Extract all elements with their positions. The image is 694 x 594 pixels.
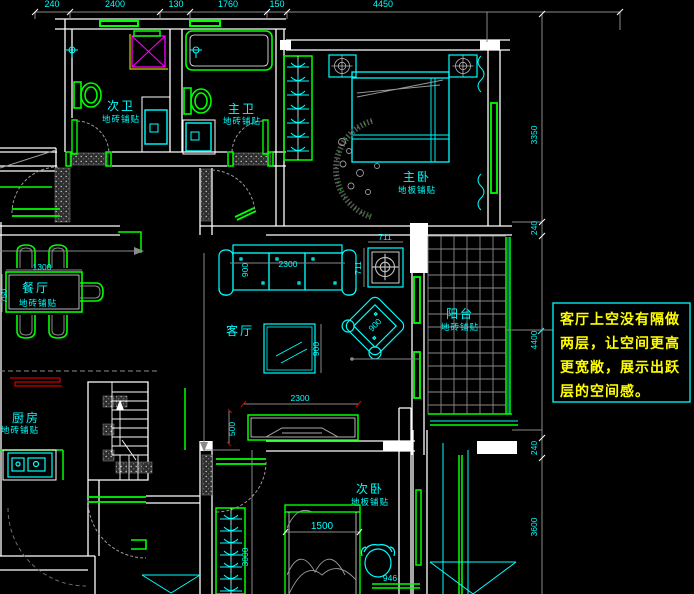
entry-door bbox=[8, 497, 200, 593]
room-label-bed2: 次卧 bbox=[356, 482, 384, 496]
counter-outline-red bbox=[10, 378, 62, 386]
lamp-icon bbox=[453, 56, 474, 77]
dim-armchair: 900 bbox=[366, 316, 383, 333]
hall-doors bbox=[12, 167, 256, 220]
rug-stones bbox=[339, 139, 380, 195]
room-label-kitchen: 厨房 bbox=[12, 410, 40, 425]
entry-canopy bbox=[142, 575, 200, 593]
bed-second bbox=[285, 505, 360, 594]
bathroom-secondary bbox=[66, 31, 170, 154]
faucet-icon bbox=[190, 47, 202, 58]
dim-tv-wall: 2300 bbox=[291, 393, 310, 403]
dim-right-0: 3350 bbox=[529, 125, 539, 144]
dim-unit-h: 711 bbox=[353, 261, 363, 275]
room-finish-kitchen: 地砖铺贴 bbox=[1, 425, 39, 435]
chair-icon bbox=[17, 315, 35, 338]
door-leaf bbox=[12, 209, 60, 216]
windows-and-green-fixtures bbox=[0, 21, 518, 594]
note-line-3: 更宽敞，展示出跃 bbox=[560, 359, 680, 375]
room-finish-bath1: 地砖铺贴 bbox=[223, 116, 261, 126]
dim-bedroom-depth: 3000 bbox=[240, 547, 250, 566]
master-bedroom bbox=[284, 55, 484, 217]
break-symbol bbox=[478, 174, 484, 210]
chair-icon bbox=[49, 315, 67, 338]
room-finish-balcony: 地砖铺贴 bbox=[441, 322, 479, 332]
dim-bed: 1500 bbox=[311, 521, 334, 532]
door-leaf bbox=[72, 120, 77, 154]
floor-plan-drawing: 客厅上空没有隔做 两层，让空间更高 更宽敞，展示出跃 层的空间感。 次卫 地砖铺… bbox=[0, 0, 694, 594]
dimension-ticks-red bbox=[227, 328, 544, 446]
note-line-4: 层的空间感。 bbox=[560, 383, 650, 399]
room-finish-dining: 地砖铺贴 bbox=[19, 298, 57, 308]
note-line-2: 两层，让空间更高 bbox=[560, 335, 680, 351]
tv-cabinet bbox=[248, 415, 358, 440]
dim-dining-depth: 750 bbox=[0, 289, 9, 303]
dim-cabinet: 500 bbox=[227, 422, 237, 436]
dim-sofa-depth: 900 bbox=[240, 263, 250, 277]
door-swing-arc bbox=[77, 121, 109, 154]
dim-right-1: 240 bbox=[529, 221, 539, 235]
dim-right-3: 240 bbox=[529, 441, 539, 455]
door-leaf bbox=[263, 120, 268, 154]
dim-top-4: 150 bbox=[269, 0, 284, 9]
room-finish-bed2: 地板铺贴 bbox=[351, 497, 389, 507]
room-label-master: 主卧 bbox=[403, 170, 431, 184]
dim-sofa-width: 2300 bbox=[279, 259, 298, 269]
dim-top-1: 2400 bbox=[105, 0, 125, 9]
door-leaf bbox=[88, 497, 146, 502]
dining-room bbox=[6, 245, 103, 338]
dimension-ticks bbox=[32, 9, 623, 535]
dim-top-2: 130 bbox=[168, 0, 183, 9]
room-label-dining: 餐厅 bbox=[22, 280, 50, 295]
annotation-note: 客厅上空没有隔做 两层，让空间更高 更宽敞，展示出跃 层的空间感。 bbox=[553, 303, 690, 402]
break-symbol bbox=[478, 56, 484, 92]
dim-bed-side: 946 bbox=[383, 573, 397, 583]
vanity-sink bbox=[145, 110, 167, 144]
door-jamb bbox=[131, 540, 146, 549]
dim-coffee-table: 900 bbox=[311, 342, 321, 356]
room-finish-bath2: 地砖铺贴 bbox=[102, 114, 140, 124]
dim-unit-w: 711 bbox=[378, 232, 392, 242]
dim-right-4: 3600 bbox=[529, 517, 539, 536]
kitchen-counter-unit bbox=[8, 453, 52, 477]
door-swing-arc bbox=[216, 462, 266, 512]
bathroom-master bbox=[183, 31, 272, 154]
room-label-balcony: 阳台 bbox=[446, 306, 474, 321]
chair-icon bbox=[49, 245, 67, 268]
chair-icon bbox=[80, 283, 103, 301]
dimension-lines bbox=[0, 12, 620, 594]
ceiling-fan-unit bbox=[368, 248, 403, 287]
bed-master bbox=[352, 72, 449, 162]
fan-icon bbox=[372, 254, 399, 281]
door-leaf bbox=[235, 208, 256, 220]
dim-top-3: 1760 bbox=[218, 0, 238, 9]
dim-top-0: 240 bbox=[44, 0, 59, 9]
door-leaf bbox=[216, 459, 266, 464]
dim-right-2: 4400 bbox=[529, 330, 539, 349]
tv-icon bbox=[266, 428, 338, 437]
toilet-icon bbox=[74, 82, 101, 108]
toilet-icon bbox=[184, 88, 211, 114]
room-label-living: 客厅 bbox=[226, 323, 254, 338]
dim-dining-width: 1300 bbox=[33, 262, 52, 272]
room-finish-master: 地板铺贴 bbox=[398, 185, 436, 195]
walls bbox=[0, 19, 517, 594]
cad-canvas[interactable]: 客厅上空没有隔做 两层，让空间更高 更宽敞，展示出跃 层的空间感。 次卫 地砖铺… bbox=[0, 0, 694, 594]
room-label-bath1: 主卫 bbox=[228, 102, 256, 116]
dim-top-5: 4450 bbox=[373, 0, 393, 9]
coffee-table bbox=[264, 324, 315, 373]
lamp-icon bbox=[332, 56, 353, 77]
room-label-bath2: 次卫 bbox=[107, 99, 135, 113]
note-line-1: 客厅上空没有隔做 bbox=[559, 311, 680, 327]
